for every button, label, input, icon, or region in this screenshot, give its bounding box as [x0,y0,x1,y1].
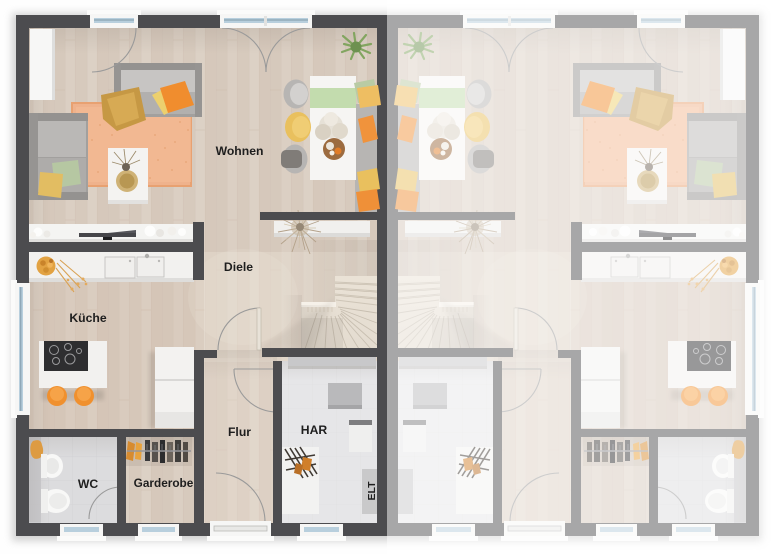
svg-text:Garderobe: Garderobe [134,476,194,490]
svg-text:ELT: ELT [366,481,378,501]
svg-text:Küche: Küche [69,311,106,325]
svg-text:WC: WC [78,477,99,491]
svg-text:HAR: HAR [301,423,328,437]
svg-text:Diele: Diele [224,260,253,274]
svg-text:Wohnen: Wohnen [216,144,264,158]
svg-text:Flur: Flur [228,425,251,439]
